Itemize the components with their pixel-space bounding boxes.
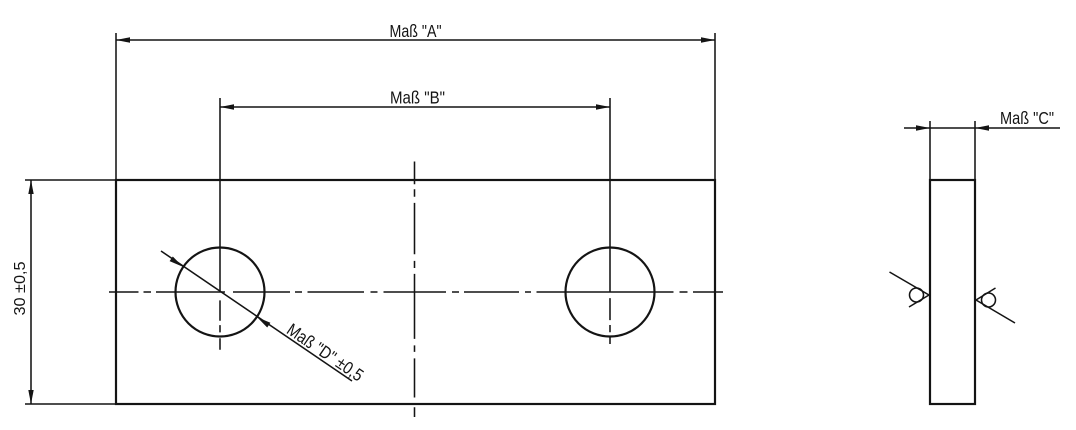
svg-text:Maß "B": Maß "B" (390, 88, 445, 108)
svg-text:Maß "C": Maß "C" (1000, 108, 1054, 128)
svg-text:30 ±0,5: 30 ±0,5 (12, 262, 29, 316)
svg-text:Maß "D" ±0,5: Maß "D" ±0,5 (283, 319, 367, 385)
svg-text:Maß "A": Maß "A" (390, 21, 442, 41)
